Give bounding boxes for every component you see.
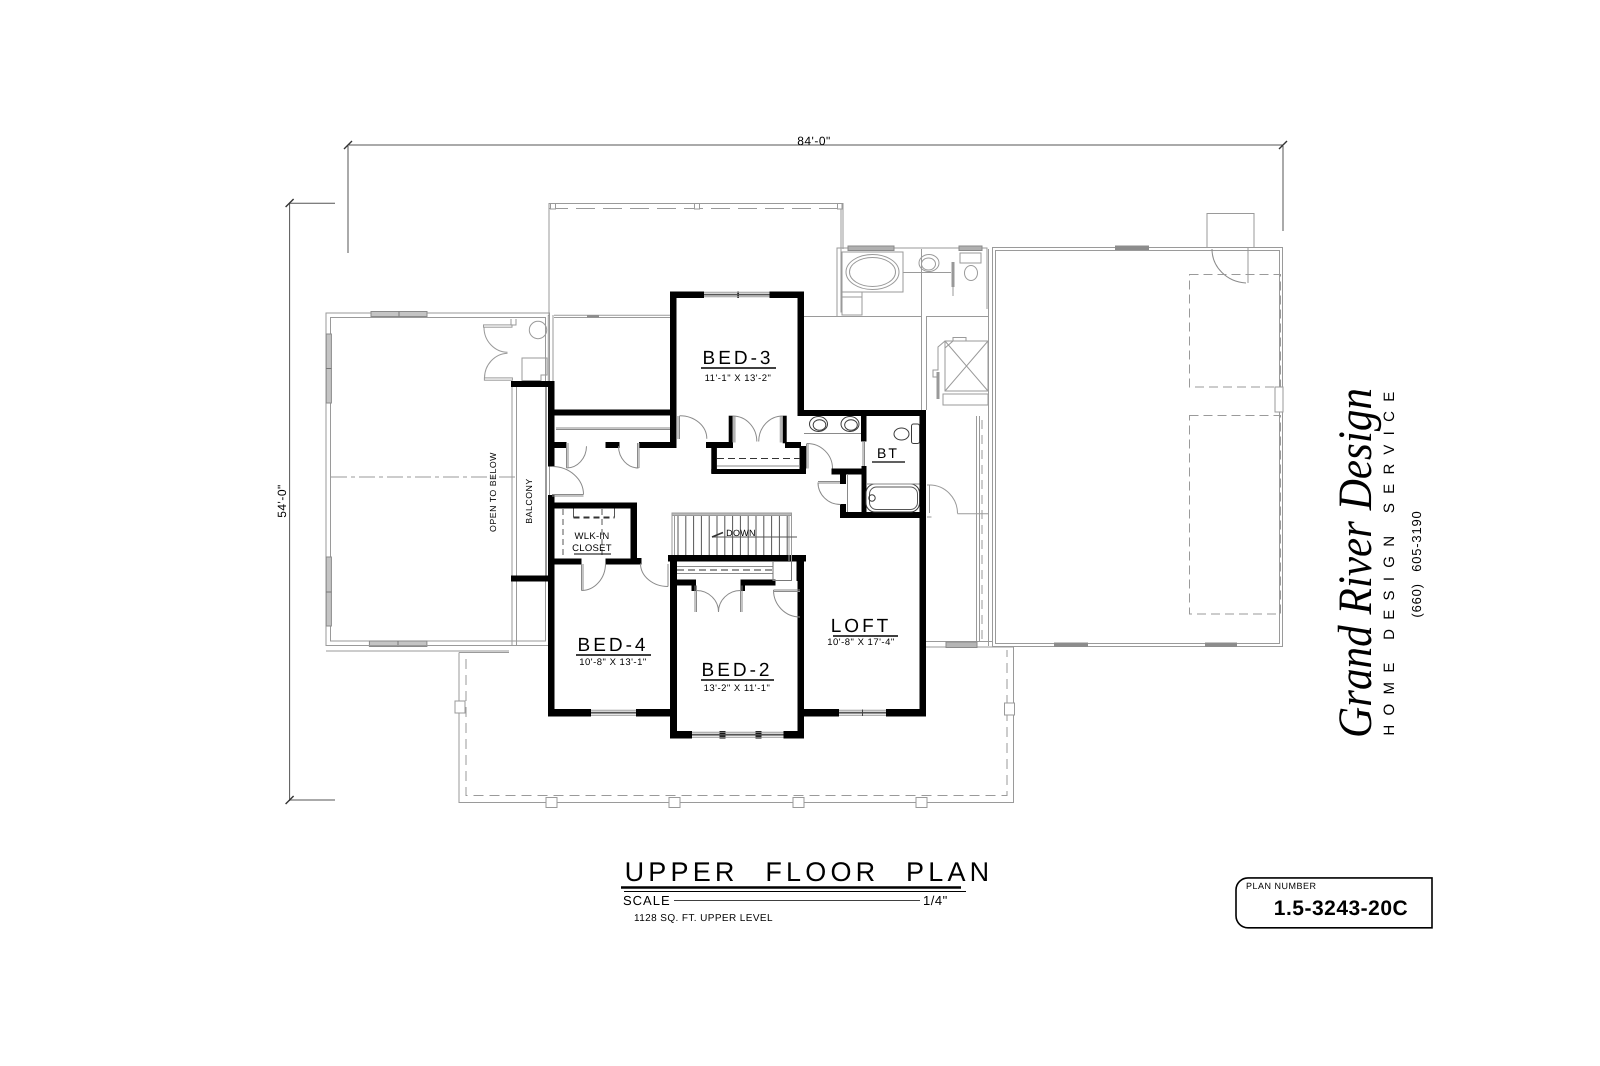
- svg-text:DOWN: DOWN: [726, 528, 756, 538]
- svg-text:BED-3: BED-3: [703, 348, 774, 369]
- svg-text:54'-0": 54'-0": [275, 484, 289, 518]
- svg-text:BED-2: BED-2: [702, 660, 773, 681]
- svg-text:CLOSET: CLOSET: [572, 543, 612, 554]
- svg-text:84'-0": 84'-0": [797, 134, 831, 148]
- svg-text:HOME DESIGN SERVICE: HOME DESIGN SERVICE: [1381, 382, 1398, 735]
- svg-text:10'-8" X 13'-1": 10'-8" X 13'-1": [579, 657, 647, 668]
- svg-text:UPPER FLOOR PLAN: UPPER FLOOR PLAN: [625, 857, 994, 887]
- svg-text:OPEN TO BELOW: OPEN TO BELOW: [488, 452, 498, 532]
- svg-text:11'-1" X 13'-2": 11'-1" X 13'-2": [705, 373, 772, 384]
- svg-text:1/4": 1/4": [923, 893, 948, 908]
- svg-text:WLK-IN: WLK-IN: [574, 531, 609, 542]
- svg-text:BED-4: BED-4: [578, 635, 649, 656]
- svg-text:13'-2" X 11'-1": 13'-2" X 11'-1": [704, 683, 771, 694]
- svg-text:10'-8" X 17'-4": 10'-8" X 17'-4": [827, 637, 895, 648]
- svg-text:1.5-3243-20C: 1.5-3243-20C: [1274, 897, 1408, 920]
- svg-text:1128 SQ. FT. UPPER LEVEL: 1128 SQ. FT. UPPER LEVEL: [634, 913, 773, 924]
- svg-text:SCALE: SCALE: [623, 893, 671, 908]
- svg-text:BT: BT: [877, 445, 899, 461]
- svg-text:PLAN NUMBER: PLAN NUMBER: [1246, 881, 1317, 891]
- svg-text:Grand River Design: Grand River Design: [1329, 388, 1382, 738]
- svg-text:BALCONY: BALCONY: [524, 478, 534, 524]
- svg-text:LOFT: LOFT: [831, 616, 892, 637]
- svg-text:(660) 605-3190: (660) 605-3190: [1409, 510, 1424, 617]
